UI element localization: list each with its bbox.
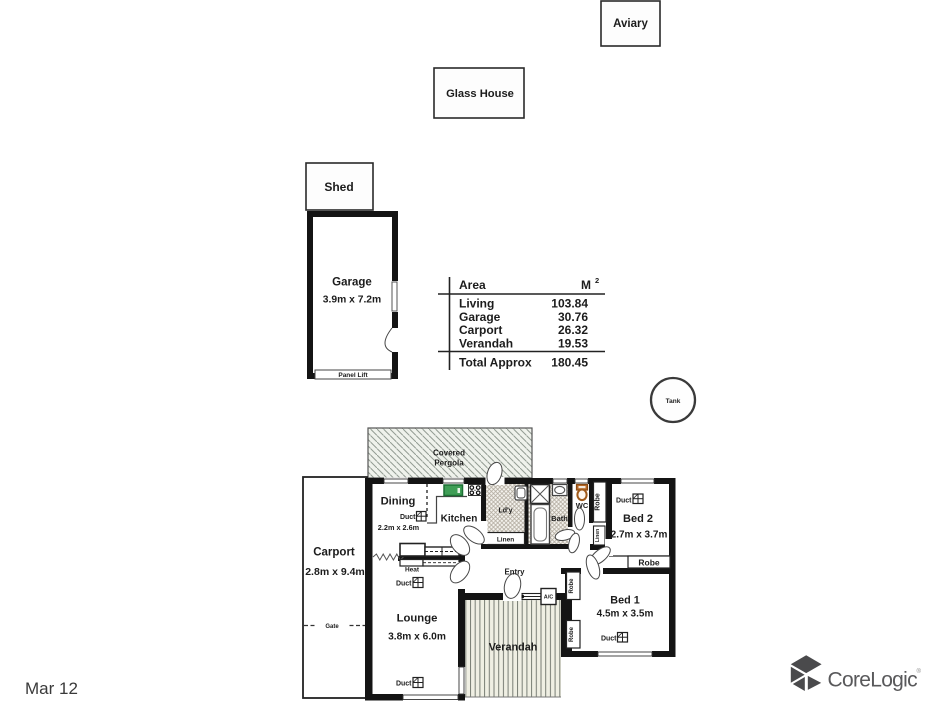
- svg-text:Gate: Gate: [325, 624, 339, 630]
- svg-text:2: 2: [595, 276, 599, 285]
- svg-text:Pergola: Pergola: [434, 459, 464, 468]
- svg-text:Dining: Dining: [381, 496, 416, 508]
- svg-text:CoreLogic: CoreLogic: [828, 669, 918, 692]
- svg-text:Duct: Duct: [616, 498, 632, 505]
- svg-text:Tank: Tank: [666, 398, 681, 405]
- svg-text:Duct: Duct: [400, 514, 416, 521]
- svg-text:Bed 2: Bed 2: [623, 513, 653, 525]
- svg-text:Duct: Duct: [396, 581, 412, 588]
- svg-text:2.2m x 2.6m: 2.2m x 2.6m: [378, 523, 420, 532]
- svg-text:Bed 1: Bed 1: [610, 595, 639, 607]
- svg-text:4.5m x 3.5m: 4.5m x 3.5m: [597, 609, 654, 620]
- svg-text:Garage: Garage: [332, 277, 372, 289]
- svg-text:103.84: 103.84: [551, 297, 588, 311]
- svg-text:Duct: Duct: [601, 636, 617, 643]
- svg-text:Mar 12: Mar 12: [25, 679, 78, 698]
- svg-text:Aviary: Aviary: [613, 18, 648, 30]
- svg-text:180.45: 180.45: [551, 356, 588, 370]
- svg-text:19.53: 19.53: [558, 336, 588, 350]
- svg-text:Carport: Carport: [313, 547, 355, 559]
- svg-text:Glass House: Glass House: [446, 88, 514, 100]
- svg-text:®: ®: [917, 668, 922, 675]
- svg-text:Garage: Garage: [459, 310, 501, 324]
- svg-text:Linen: Linen: [497, 537, 514, 544]
- svg-text:Duct: Duct: [396, 681, 412, 688]
- svg-text:Entry: Entry: [505, 568, 526, 577]
- svg-text:Verandah: Verandah: [459, 336, 513, 350]
- svg-text:3.9m x 7.2m: 3.9m x 7.2m: [323, 295, 381, 306]
- svg-text:Lounge: Lounge: [397, 613, 438, 625]
- svg-text:Linen: Linen: [595, 529, 601, 542]
- svg-text:Ld'y: Ld'y: [498, 508, 512, 515]
- svg-text:Bath: Bath: [551, 514, 568, 523]
- svg-text:A/C: A/C: [544, 595, 554, 601]
- svg-text:2.7m x 3.7m: 2.7m x 3.7m: [611, 530, 668, 541]
- svg-text:Kitchen: Kitchen: [441, 514, 478, 525]
- svg-text:Verandah: Verandah: [489, 642, 538, 654]
- svg-text:Robe: Robe: [569, 626, 575, 642]
- svg-text:30.76: 30.76: [558, 310, 588, 324]
- svg-text:Heat: Heat: [405, 567, 420, 574]
- svg-text:Panel Lift: Panel Lift: [338, 372, 368, 379]
- svg-text:Carport: Carport: [459, 323, 502, 337]
- svg-text:Robe: Robe: [595, 493, 602, 511]
- svg-text:26.32: 26.32: [558, 323, 588, 337]
- svg-text:Covered: Covered: [433, 449, 465, 458]
- svg-text:Total Approx: Total Approx: [459, 356, 532, 370]
- svg-text:Shed: Shed: [324, 180, 353, 194]
- svg-text:M: M: [581, 278, 591, 292]
- svg-text:Robe: Robe: [638, 558, 660, 568]
- svg-text:3.8m x 6.0m: 3.8m x 6.0m: [388, 632, 446, 643]
- svg-text:Living: Living: [459, 297, 494, 311]
- svg-text:2.8m x 9.4m: 2.8m x 9.4m: [305, 566, 365, 578]
- svg-text:Robe: Robe: [569, 578, 575, 594]
- svg-text:Area: Area: [459, 278, 486, 292]
